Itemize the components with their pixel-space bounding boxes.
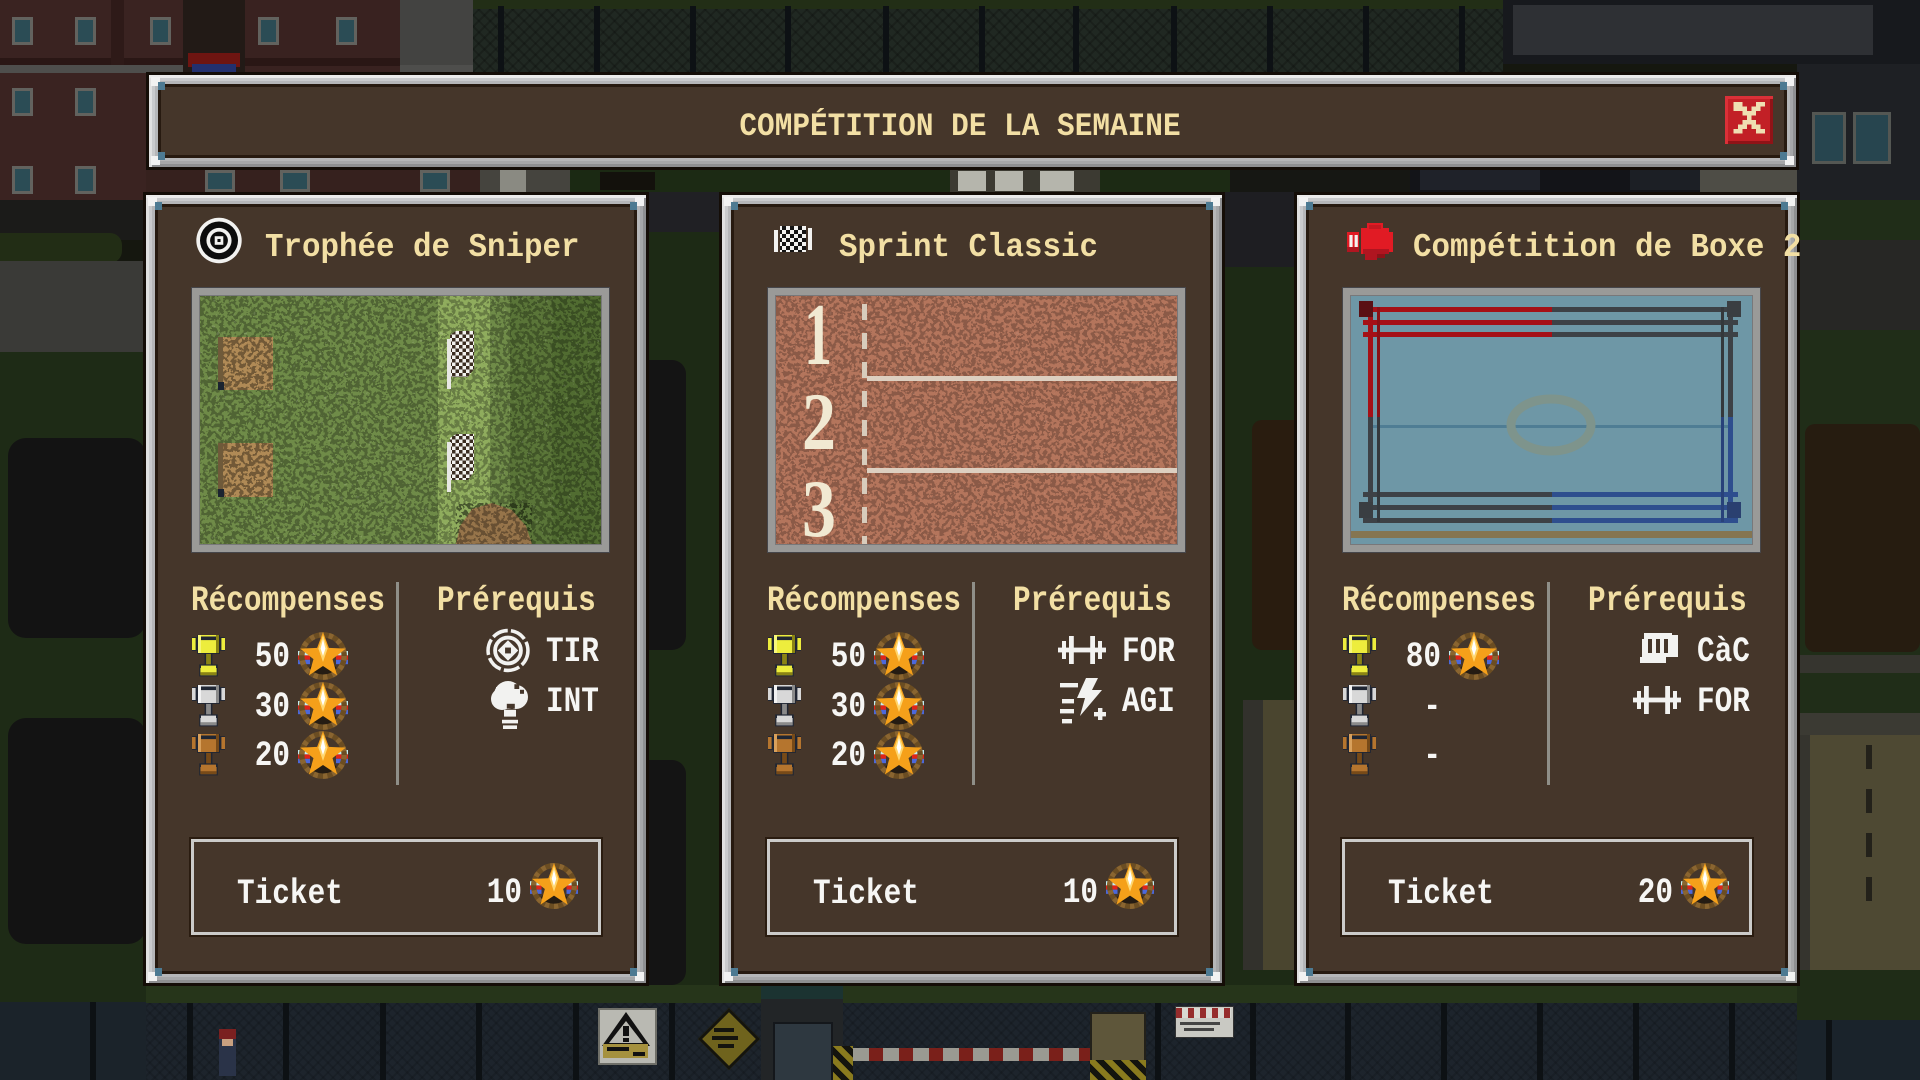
svg-text:2: 2 (802, 376, 836, 467)
svg-text:1: 1 (804, 296, 832, 384)
svg-text:3: 3 (802, 463, 836, 544)
